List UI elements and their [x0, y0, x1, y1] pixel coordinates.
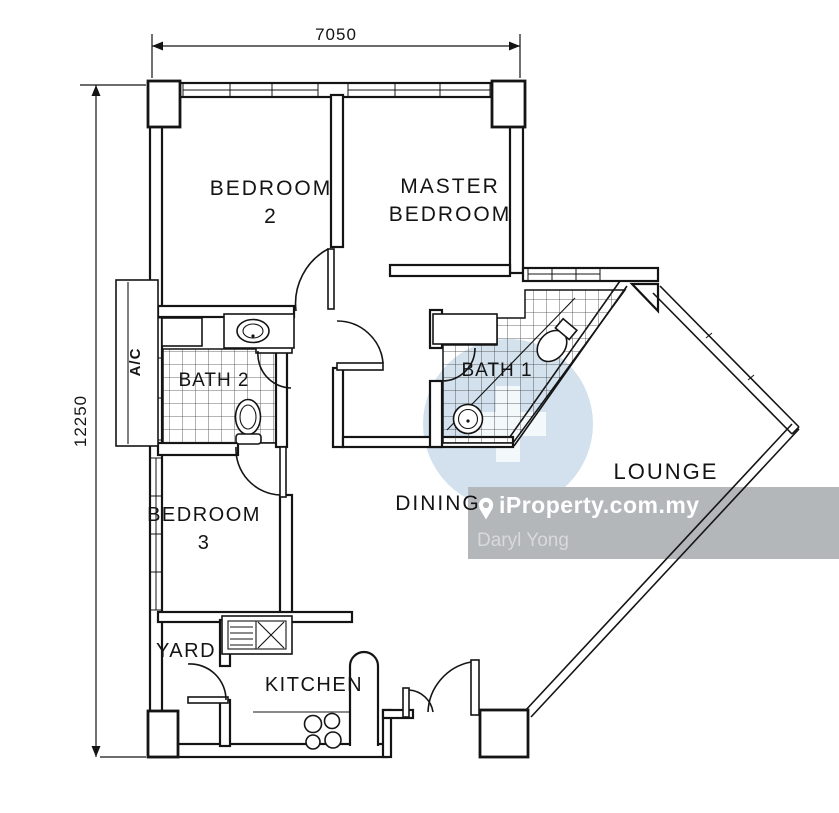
floor-plan-page: iProperty.com.my Daryl Yong 7050 12250 — [0, 0, 839, 813]
wall-bedroom3-top — [158, 443, 238, 455]
column-entry — [480, 710, 528, 757]
watermark-agent: Daryl Yong — [477, 530, 569, 551]
entry-door-small-leaf — [403, 688, 409, 717]
room-label-bedroom3-line1: BEDROOM — [147, 504, 261, 526]
wall-bedroom-divider — [331, 95, 343, 247]
bath1-sink-icon — [454, 405, 483, 434]
room-label-bedroom2-line1: BEDROOM — [210, 177, 333, 200]
kitchen-sink-icon — [222, 616, 292, 654]
wall-kitchen-curved — [350, 652, 378, 746]
room-label-bedroom2-line2: 2 — [264, 205, 278, 228]
ac-ledge: A/C — [116, 280, 158, 446]
room-label-bath2: BATH 2 — [178, 370, 249, 391]
room-label-yard: YARD — [156, 640, 216, 662]
ac-label: A/C — [127, 348, 144, 377]
bedroom3-door-leaf — [280, 447, 286, 497]
bath1-vanity — [433, 314, 497, 344]
dimension-top: 7050 — [152, 25, 520, 78]
wall-bedroom3-right — [280, 495, 292, 618]
column-top-left — [148, 81, 180, 127]
dimension-height-label: 12250 — [71, 395, 90, 447]
room-label-bedroom3-line2: 3 — [198, 532, 211, 554]
yard-door-leaf — [188, 697, 228, 703]
room-label-master-line1: MASTER — [400, 175, 500, 198]
room-label-lounge: LOUNGE — [614, 459, 719, 484]
entry-door-main-arc — [428, 662, 471, 712]
bedroom2-door-leaf — [328, 249, 334, 309]
column-top-right — [492, 81, 525, 127]
wall-yard-divider-bottom — [220, 700, 230, 746]
wall-alcove-left — [333, 368, 343, 447]
room-label-bath1: BATH 1 — [461, 360, 532, 381]
floor-plan-drawing: iProperty.com.my Daryl Yong 7050 12250 — [0, 0, 839, 813]
entry-door-main-leaf — [471, 660, 479, 715]
master-door-arc — [337, 321, 383, 363]
bath2-cabinet — [162, 318, 202, 346]
wall-corner-triangle — [632, 284, 658, 311]
dimension-width-label: 7050 — [315, 25, 357, 44]
wall-bath1-left-lower — [430, 381, 442, 447]
bedroom3-door-arc — [236, 447, 280, 495]
bedroom2-door-arc — [296, 249, 328, 311]
master-door-leaf — [337, 363, 383, 370]
wall-lounge-ne-window — [653, 286, 799, 434]
column-bottom-left — [148, 711, 178, 757]
wall-bath2-right — [276, 348, 287, 447]
bath2-sink-icon — [237, 320, 269, 343]
watermark-banner: iProperty.com.my Daryl Yong — [468, 487, 839, 559]
watermark-brand: iProperty.com.my — [499, 492, 700, 518]
room-label-master-line2: BEDROOM — [389, 203, 512, 226]
wall-master-bottom — [390, 265, 510, 276]
room-label-kitchen: KITCHEN — [265, 674, 363, 696]
room-label-dining: DINING — [395, 492, 481, 515]
bath2-toilet-icon — [236, 400, 262, 445]
yard-door-arc — [188, 664, 226, 700]
